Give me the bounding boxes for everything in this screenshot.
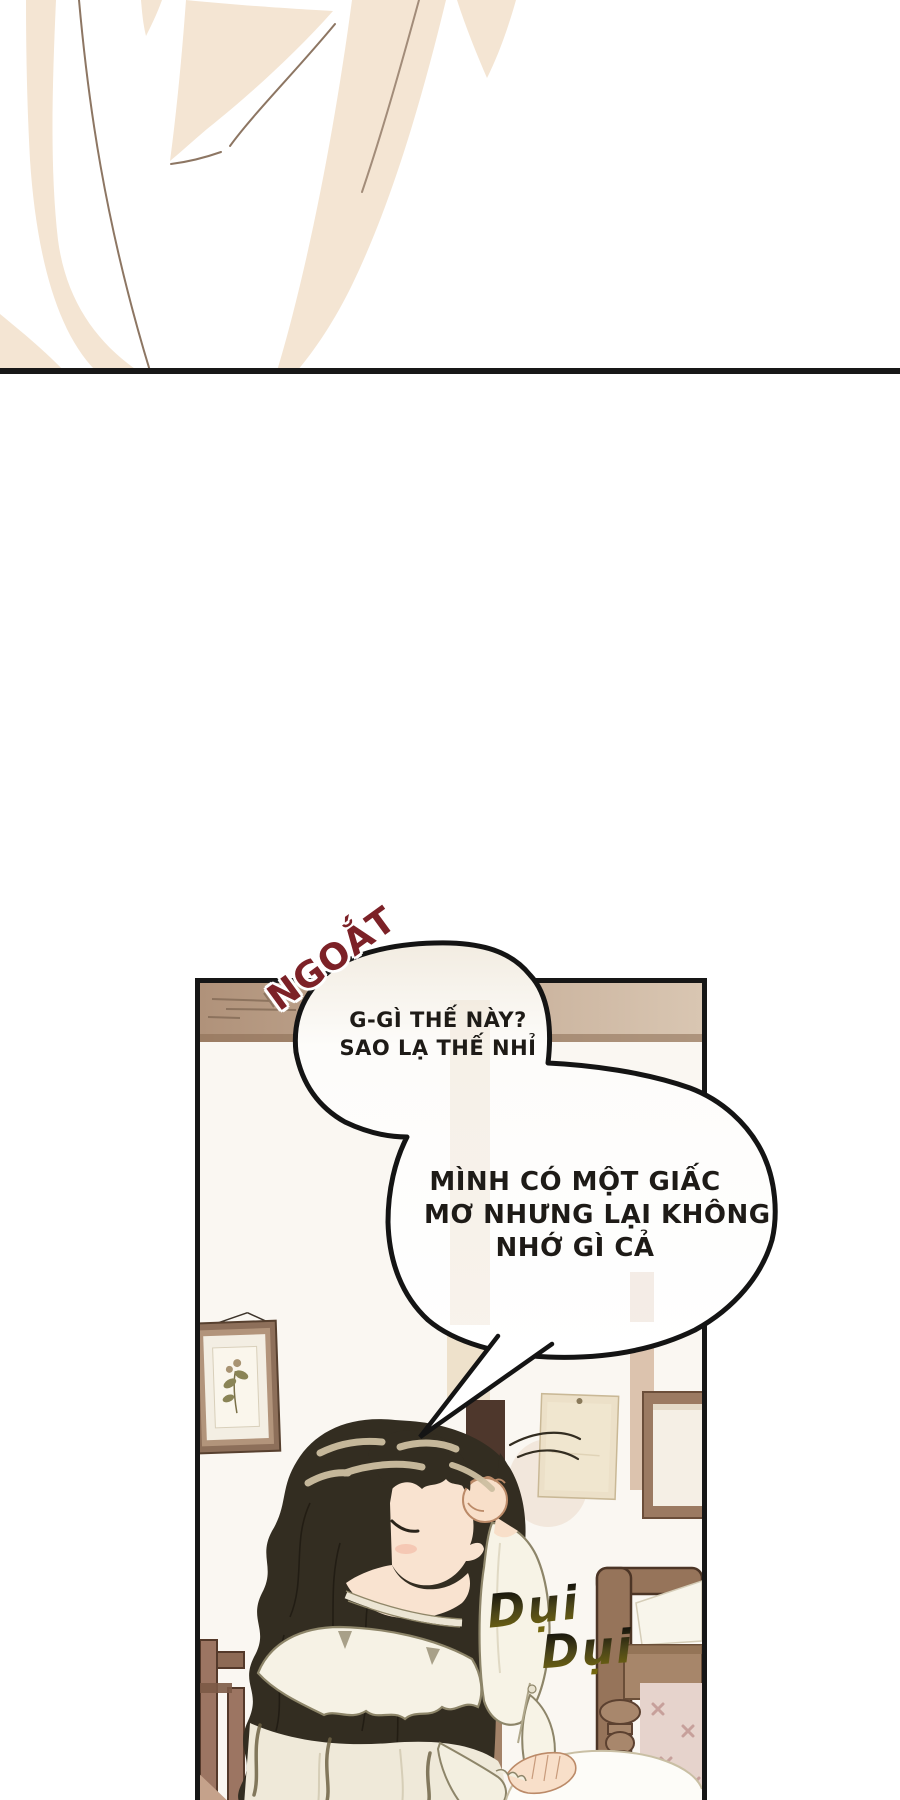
bubble-one-line-1: G-GÌ THẾ NÀY?: [328, 1006, 548, 1034]
botanical-picture-frame: [200, 1312, 280, 1454]
comic-panel: [195, 978, 707, 1800]
comic-page: NGOẮT G-GÌ THẾ NÀY? SAO LẠ THẾ NHỈ MÌNH …: [0, 0, 900, 1800]
speech-bubble-one-text: G-GÌ THẾ NÀY? SAO LẠ THẾ NHỈ: [328, 1006, 548, 1062]
speech-bubble-two-text: MÌNH CÓ MỘT GIẤC MƠ NHƯNG LẠI KHÔNG NHỚ …: [424, 1166, 726, 1265]
cuff-bow: [528, 1685, 536, 1693]
sfx-dui-second: Dụi: [539, 1619, 635, 1679]
bubble-two-line-3: NHỚ GÌ CẢ: [424, 1232, 726, 1265]
bedroom-scene: [200, 983, 702, 1800]
section-divider-line: [0, 368, 900, 374]
wall-paper-note: [538, 1394, 619, 1500]
right-picture-frame: [643, 1392, 702, 1518]
bubble-two-line-1: MÌNH CÓ MỘT GIẤC: [424, 1166, 726, 1199]
fabric-closeup-artwork: [0, 0, 900, 372]
bubble-one-line-2: SAO LẠ THẾ NHỈ: [328, 1034, 548, 1062]
bubble-two-line-2: MƠ NHƯNG LẠI KHÔNG: [424, 1199, 726, 1232]
blush: [395, 1544, 417, 1554]
